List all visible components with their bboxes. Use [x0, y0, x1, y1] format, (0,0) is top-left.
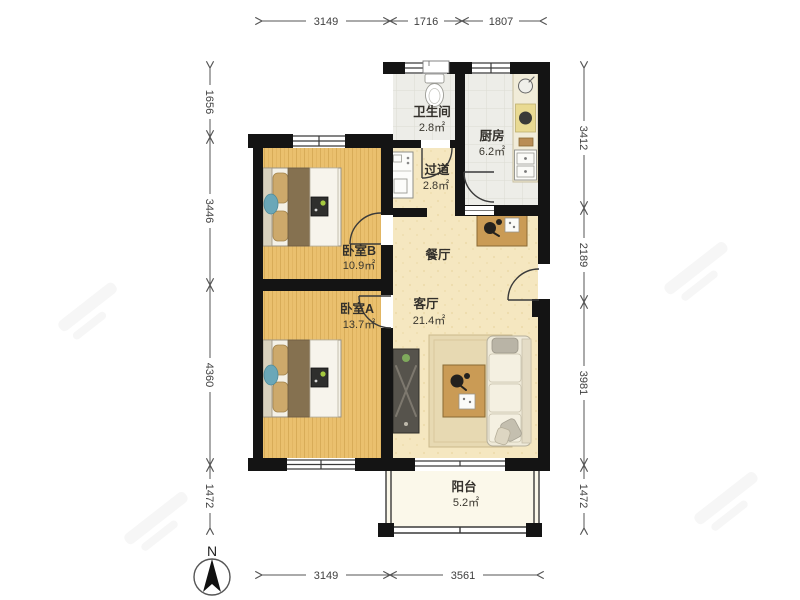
label-kitchen-name: 厨房 — [479, 128, 504, 143]
label-bathroom-area: 2.8㎡ — [419, 121, 445, 134]
dim-bottom-2: 3561 — [451, 570, 475, 582]
dim-left-1: 1656 — [203, 90, 215, 114]
kitchen-door-threshold — [465, 206, 494, 215]
label-balcony-area: 5.2㎡ — [453, 496, 479, 509]
label-bedroom-a-name: 卧室A — [340, 301, 374, 316]
bedroom-b-window — [293, 134, 345, 148]
label-hallway-name: 过道 — [424, 162, 450, 177]
dim-right-4: 1472 — [577, 484, 589, 508]
label-living-area: 21.4㎡ — [413, 314, 445, 327]
dim-top-1: 3149 — [314, 16, 338, 28]
label-hallway-area: 2.8㎡ — [423, 179, 449, 192]
dim-left-2: 3446 — [203, 199, 215, 223]
washing-machine — [391, 152, 413, 198]
dim-left-3: 4360 — [203, 363, 215, 387]
bed-bedroom-b — [263, 168, 341, 246]
floorplan-svg: 卫生间 2.8㎡ 厨房 6.2㎡ 过道 2.8㎡ 卧室B 10.9㎡ 餐厅 客厅… — [0, 0, 800, 600]
label-bathroom-name: 卫生间 — [413, 104, 451, 119]
label-bedroom-a-area: 13.7㎡ — [343, 318, 375, 331]
kitchen-counter — [513, 72, 538, 182]
dim-right-2: 2189 — [577, 243, 589, 267]
dim-right-3: 3981 — [577, 371, 589, 395]
floorplan-canvas: 卫生间 2.8㎡ 厨房 6.2㎡ 过道 2.8㎡ 卧室B 10.9㎡ 餐厅 客厅… — [0, 0, 800, 600]
tv-cabinet — [393, 349, 419, 433]
bedroom-a-window — [287, 458, 355, 471]
label-living-name: 客厅 — [412, 296, 439, 311]
label-dining-name: 餐厅 — [424, 247, 451, 262]
balcony-slider — [415, 458, 505, 471]
label-balcony-name: 阳台 — [451, 479, 476, 494]
north-indicator: N — [194, 543, 230, 595]
kitchen-window — [472, 62, 510, 74]
dim-top-3: 1807 — [489, 16, 513, 28]
label-bedroom-b-name: 卧室B — [342, 243, 376, 258]
dim-bottom-1: 3149 — [314, 570, 338, 582]
bed-bedroom-a — [263, 340, 341, 417]
coffee-table — [443, 365, 485, 417]
dim-right-1: 3412 — [577, 126, 589, 150]
dim-top-2: 1716 — [414, 16, 438, 28]
label-kitchen-area: 6.2㎡ — [479, 145, 505, 158]
toilet — [425, 74, 444, 107]
sofa — [487, 336, 531, 446]
north-label: N — [207, 543, 217, 559]
dining-table — [477, 212, 527, 246]
dim-left-4: 1472 — [203, 484, 215, 508]
label-bedroom-b-area: 10.9㎡ — [343, 259, 375, 272]
vent-shaft — [423, 61, 449, 73]
